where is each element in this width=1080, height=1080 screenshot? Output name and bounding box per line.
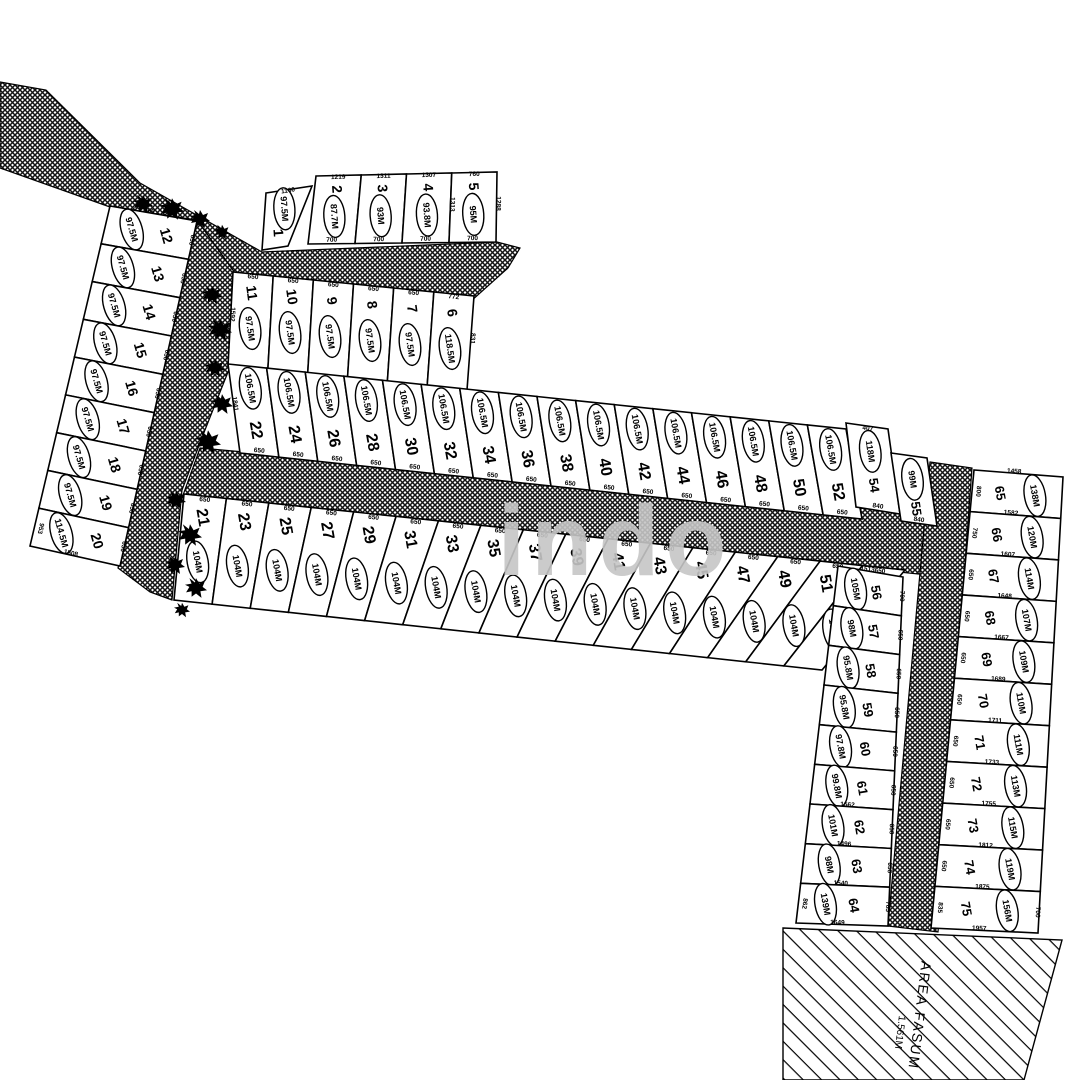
lot-number: 11: [243, 284, 261, 301]
lot-number: 42: [634, 461, 654, 482]
dimension-label: 1311: [376, 173, 391, 180]
lot-2: 87.7M21219700: [308, 174, 361, 244]
lot-number: 4: [420, 183, 437, 192]
lot-4: 93.8M41307700: [402, 172, 452, 243]
lot-67: 114M676501648: [962, 553, 1058, 601]
lot-number: 31: [400, 529, 420, 550]
lot-number: 21: [192, 507, 212, 528]
lot-number: 36: [517, 449, 537, 470]
dimension-label: 650: [955, 694, 963, 706]
dimension-label: 1562: [840, 801, 855, 809]
lot-1: 97.5M11160: [262, 186, 312, 250]
lot-number: 22: [246, 420, 266, 441]
dimension-label: 750: [970, 527, 978, 539]
lot-number: 54: [866, 477, 883, 494]
lot-60: 97.8M60650: [815, 724, 899, 771]
dimension-label: 650: [452, 523, 464, 531]
dimension-label: 650: [253, 447, 265, 455]
lot-number: 10: [283, 288, 301, 306]
dimension-label: 831: [468, 333, 476, 345]
lot-number: 44: [672, 465, 692, 486]
lot-number: 33: [442, 534, 462, 555]
dimension-label: 650: [959, 652, 967, 664]
lot-number: 48: [750, 473, 770, 494]
lot-number: 62: [851, 819, 868, 836]
dimension-label: 650: [893, 707, 900, 719]
lot-number: 5: [466, 182, 483, 191]
dimension-label: 650: [283, 505, 295, 513]
dimension-label: 1307: [422, 172, 437, 179]
lot-number: 2: [329, 185, 346, 194]
lot-5: 95M576013131288700: [448, 171, 501, 243]
lot-6: 118.5M6772831: [427, 292, 476, 390]
dimension-label: 700: [373, 236, 384, 243]
dimension-label: 1496: [837, 840, 852, 848]
dimension-label: 650: [247, 273, 259, 281]
dimension-label: 1592: [228, 307, 236, 322]
lot-number: 60: [857, 741, 874, 758]
dimension-label: 650: [199, 496, 211, 504]
lot-number: 25: [275, 516, 295, 537]
dimension-label: 700: [1034, 907, 1042, 919]
dimension-label: 650: [748, 554, 760, 562]
dimension-label: 650: [947, 777, 955, 789]
lot-number: 61: [854, 780, 871, 797]
dimension-label: 650: [409, 463, 421, 471]
lot-number: 68: [981, 609, 998, 626]
dimension-label: 700: [898, 591, 905, 603]
dimension-label: 650: [886, 862, 893, 874]
dimension-label: 650: [940, 860, 948, 872]
dimension-label: 700: [420, 236, 431, 243]
lot-number: 69: [978, 651, 995, 668]
lot-number: 59: [859, 701, 876, 718]
dimension-label: 862: [800, 898, 808, 910]
dimension-label: 772: [448, 293, 460, 301]
dimension-label: 1540: [833, 880, 848, 888]
lot-number: 32: [440, 441, 460, 462]
dimension-label: 650: [759, 500, 771, 508]
dimension-label: 650: [963, 610, 971, 622]
dimension-label: 1649: [830, 919, 845, 926]
lot-number: 66: [988, 526, 1005, 543]
lot-72: 113M726501755: [943, 761, 1047, 808]
lot-area-label: 87.7M: [328, 204, 340, 230]
lot-number: 57: [865, 623, 882, 640]
dimension-label: 650: [326, 509, 338, 517]
lot-number: 67: [985, 568, 1002, 585]
lot-number: 34: [478, 445, 498, 466]
dimension-label: 835: [936, 902, 944, 914]
lot-64: 139M6415401649862785: [796, 880, 891, 927]
lot-number: 58: [862, 662, 879, 679]
dimension-label: 650: [951, 735, 959, 747]
dimension-label: 650: [410, 518, 422, 526]
lot-number: 75: [958, 900, 975, 917]
dimension-label: 1458: [1007, 468, 1022, 476]
lot-59: 95.8M59650: [819, 685, 900, 732]
lot-number: 52: [828, 482, 848, 503]
lot-area-label: 93M: [375, 207, 386, 225]
lot-9: 97.5M9650: [308, 280, 354, 378]
site-plan-canvas: AREA FASUM 1.561M 97.5M1116087.7M2121970…: [0, 0, 1080, 1080]
dimension-label: 650: [887, 823, 894, 835]
lot-number: 49: [774, 569, 794, 590]
lot-number: 28: [362, 432, 382, 453]
dimension-label: 650: [287, 277, 299, 285]
lot-11: 97.5M116501592: [228, 272, 273, 370]
dimension-label: 650: [896, 629, 903, 641]
lot-number: 26: [323, 428, 343, 449]
lot-number: 1: [270, 228, 287, 237]
dimension-label: 1313: [448, 197, 456, 212]
dimension-label: 650: [943, 819, 951, 831]
lot-number: 27: [317, 520, 337, 541]
lot-area-label: 95M: [468, 205, 479, 223]
dimension-label: 650: [292, 451, 304, 459]
lot-number: 73: [965, 817, 982, 834]
lot-area-label: 97.5M: [279, 196, 291, 222]
dimension-label: 650: [241, 500, 253, 508]
dimension-label: 650: [836, 509, 848, 517]
lot-65: 138M6514588001582: [970, 468, 1063, 519]
dimension-label: 785: [884, 901, 891, 913]
lot-number: 23: [234, 512, 254, 533]
dimension-label: 1288: [494, 196, 501, 211]
lot-number: 50: [789, 477, 809, 498]
lot-70: 110M706501711: [951, 678, 1052, 726]
lot-75: 156M758351957700: [931, 886, 1041, 933]
dimension-label: 650: [798, 505, 810, 513]
dimension-label: 650: [790, 558, 802, 566]
lot-69: 109M696501689: [954, 637, 1053, 685]
dimension-label: 650: [448, 467, 460, 475]
dimension-label: 800: [974, 486, 982, 498]
dimension-label: 650: [966, 569, 974, 581]
lot-number: 72: [968, 776, 985, 793]
lot-number: 63: [848, 858, 865, 875]
dimension-label: 650: [328, 281, 340, 289]
lot-68: 107M686501667: [958, 595, 1056, 643]
dimension-label: 700: [467, 235, 478, 242]
lot-number: 40: [595, 457, 615, 478]
lot-number: 71: [971, 734, 988, 751]
dimension-label: 700: [326, 237, 337, 244]
dimension-label: 650: [894, 668, 901, 680]
lot-area-label: 93.8M: [421, 202, 433, 228]
lot-number: 24: [284, 424, 304, 445]
dimension-label: 1841: [230, 396, 239, 412]
lot-number: 29: [359, 525, 379, 546]
lot-number: 65: [992, 485, 1009, 502]
dimension-label: 650: [891, 746, 898, 758]
area-fasum-region: AREA FASUM 1.561M: [783, 928, 1062, 1080]
lot-74: 119M746501875: [935, 845, 1043, 892]
dimension-label: 650: [331, 455, 343, 463]
lot-number: 51: [816, 573, 836, 594]
lot-number: 30: [401, 436, 421, 457]
lot-10: 97.5M10650: [268, 276, 314, 374]
lot-number: 38: [556, 453, 576, 474]
watermark-text: indo: [497, 485, 732, 597]
dimension-label: 650: [487, 472, 499, 480]
plat-map-drawing: AREA FASUM 1.561M 97.5M1116087.7M2121970…: [0, 0, 1080, 1080]
dimension-label: 650: [526, 476, 538, 484]
dimension-label: 650: [889, 785, 896, 797]
dimension-label: 1219: [331, 174, 346, 181]
tree-icon: [174, 603, 190, 617]
lot-7: 97.5M7650: [387, 288, 434, 386]
lot-66: 120M667501607: [966, 512, 1061, 560]
lot-number: 56: [868, 584, 885, 601]
dimension-label: 650: [408, 289, 420, 297]
lot-3: 93M31311700: [355, 173, 407, 244]
lot-number: 47: [733, 564, 753, 585]
lot-number: 55: [908, 500, 925, 516]
lot-number: 70: [975, 693, 992, 710]
dimension-label: 760: [469, 171, 480, 178]
lot-71: 111M716501733: [947, 720, 1050, 767]
dimension-label: 650: [370, 459, 382, 467]
dimension-label: 650: [368, 285, 380, 293]
dimension-label: 650: [368, 514, 380, 522]
lot-8: 97.5M8650: [348, 284, 394, 382]
lot-number: 3: [375, 184, 392, 193]
dimension-label: 1957: [972, 925, 987, 933]
lot-73: 115M736501812: [939, 803, 1045, 850]
lot-parcel: [815, 725, 897, 771]
